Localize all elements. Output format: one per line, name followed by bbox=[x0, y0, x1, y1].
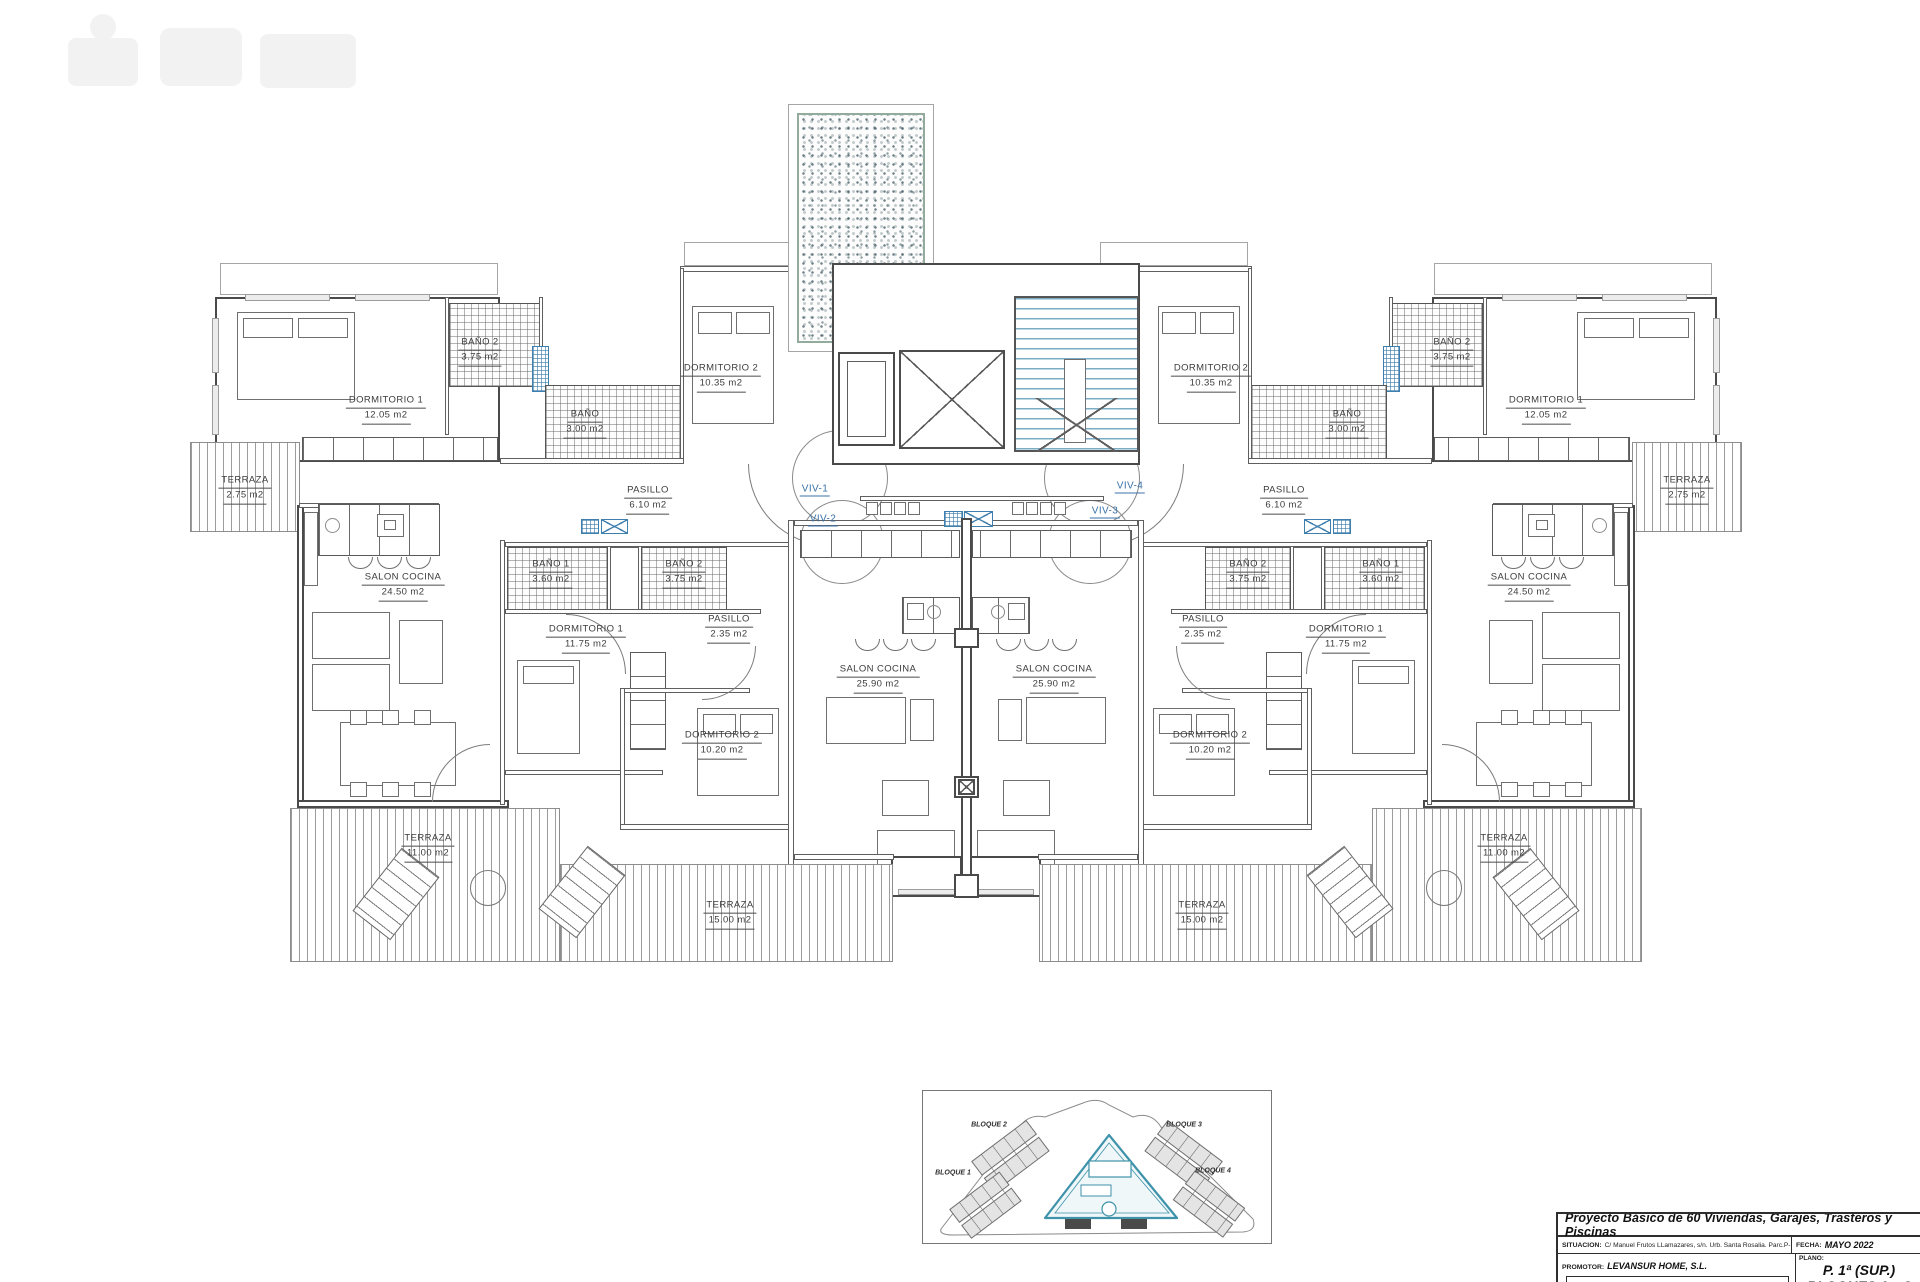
appliance-fixture bbox=[601, 519, 628, 534]
room-label-terraza11: TERRAZA11.00 m2 bbox=[1477, 833, 1530, 864]
wall-salon-divider bbox=[1138, 520, 1144, 895]
room-label-bano2: BAÑO 23.75 m2 bbox=[1226, 559, 1269, 590]
kitchen-counter bbox=[304, 512, 318, 586]
bar-stool bbox=[911, 639, 936, 651]
dining-chair bbox=[1565, 782, 1582, 797]
promotor-box bbox=[1566, 1276, 1789, 1282]
party-wall bbox=[961, 518, 972, 880]
coffee-table bbox=[1489, 620, 1533, 684]
furniture-wardrobe bbox=[630, 652, 666, 750]
plano-line1: P. 1ª (SUP.) bbox=[1796, 1262, 1920, 1278]
furniture-sofa bbox=[312, 664, 390, 711]
wall-partition bbox=[500, 458, 684, 464]
window-bar bbox=[245, 294, 330, 301]
shunt-x bbox=[958, 779, 975, 795]
furniture-sofa bbox=[826, 697, 906, 744]
bed-pillow bbox=[298, 318, 348, 338]
room-label-dormitorio1: DORMITORIO 111.75 m2 bbox=[1306, 624, 1386, 655]
room-label-dormitorio1: DORMITORIO 112.05 m2 bbox=[346, 395, 426, 426]
bar-stool bbox=[377, 557, 402, 569]
window-bar bbox=[1713, 385, 1720, 435]
bar-stool bbox=[1530, 557, 1555, 569]
window-bar bbox=[977, 889, 1034, 895]
elevator-cab bbox=[847, 361, 886, 437]
mailbox bbox=[908, 502, 920, 515]
situacion-label: SITUACION: bbox=[1562, 1242, 1602, 1249]
viv-label-2: VIV-2 bbox=[808, 514, 838, 527]
dining-chair bbox=[350, 782, 367, 797]
bar-stool bbox=[348, 557, 373, 569]
round-table bbox=[1426, 870, 1462, 906]
furniture-sofa bbox=[1542, 664, 1620, 711]
kitchen-hob bbox=[907, 603, 924, 620]
wall-partition bbox=[1483, 297, 1487, 435]
furniture-sofa bbox=[1542, 612, 1620, 659]
mailbox bbox=[894, 502, 906, 515]
wall-partition bbox=[860, 496, 1104, 501]
room-label-pasillo: PASILLO6.10 m2 bbox=[624, 485, 672, 516]
fecha-value: MAYO 2022 bbox=[1825, 1240, 1874, 1250]
window-bar bbox=[1502, 294, 1577, 301]
bed-pillow bbox=[698, 312, 732, 334]
title-block: Proyecto Básico de 60 Viviendas, Garajes… bbox=[1556, 1212, 1920, 1282]
room-label-pasillo: PASILLO6.10 m2 bbox=[1260, 485, 1308, 516]
furniture-armchair bbox=[910, 699, 934, 741]
kitchen-sink bbox=[1592, 518, 1607, 533]
room-label-dormitorio1: DORMITORIO 111.75 m2 bbox=[546, 624, 626, 655]
room-label-terraza15: TERRAZA15.00 m2 bbox=[1175, 900, 1228, 931]
appliance-fixture bbox=[1304, 519, 1331, 534]
window-bar bbox=[212, 385, 219, 435]
room-label-dormitorio1: DORMITORIO 112.05 m2 bbox=[1506, 395, 1586, 426]
kitchen-hob-inner bbox=[1536, 520, 1548, 530]
room-label-bano2: BAÑO 23.75 m2 bbox=[1430, 337, 1473, 368]
coffee-table bbox=[1003, 780, 1050, 816]
wall-salon-divider bbox=[788, 520, 794, 895]
mailbox bbox=[1040, 502, 1052, 515]
party-wall-post bbox=[954, 628, 979, 648]
mailbox bbox=[1054, 502, 1066, 515]
bar-stool bbox=[996, 639, 1021, 651]
situacion-value: C/ Manuel Frutos LLamazares, s/n. Urb. S… bbox=[1605, 1242, 1792, 1249]
promotor-value: LEVANSUR HOME, S.L. bbox=[1607, 1261, 1707, 1271]
washer-fixture bbox=[581, 519, 599, 534]
bed-pillow bbox=[1162, 312, 1196, 334]
site-plan-label-bloque4: BLOQUE 4 bbox=[1195, 1168, 1231, 1175]
bar-stool bbox=[1024, 639, 1049, 651]
party-wall-post bbox=[954, 874, 979, 898]
window-bar bbox=[898, 889, 955, 895]
dining-chair bbox=[414, 710, 431, 725]
room-label-terraza11: TERRAZA11.00 m2 bbox=[401, 833, 454, 864]
furniture-wardrobe bbox=[1266, 652, 1302, 750]
kitchen-hob-inner bbox=[384, 520, 396, 530]
dining-chair bbox=[1501, 710, 1518, 725]
room-label-pasillo: PASILLO2.35 m2 bbox=[705, 614, 753, 645]
furniture-wardrobe bbox=[1434, 437, 1630, 461]
wall-partition bbox=[620, 824, 792, 830]
project-title: Proyecto Básico de 60 Viviendas, Garajes… bbox=[1558, 1214, 1920, 1237]
kitchen-sink bbox=[927, 605, 941, 619]
wall-partition bbox=[968, 520, 1138, 526]
viv-label-3: VIV-3 bbox=[1090, 506, 1120, 519]
mailbox bbox=[866, 502, 878, 515]
kitchen-counter-row bbox=[972, 530, 1132, 558]
dining-chair bbox=[1501, 782, 1518, 797]
room-label-bano2: BAÑO 23.75 m2 bbox=[458, 337, 501, 368]
dining-chair bbox=[382, 710, 399, 725]
promotor-label: PROMOTOR: bbox=[1562, 1264, 1604, 1271]
room-label-dormitorio2: DORMITORIO 210.20 m2 bbox=[1170, 730, 1250, 761]
closet bbox=[1293, 547, 1322, 611]
room-label-dormitorio2: DORMITORIO 210.35 m2 bbox=[1171, 363, 1251, 394]
washer-fixture bbox=[1333, 519, 1351, 534]
dining-chair bbox=[350, 710, 367, 725]
site-plan-box: BLOQUE 2 BLOQUE 3 BLOQUE 1 BLOQUE 4 bbox=[922, 1090, 1272, 1244]
room-label-salon-cocina: SALON COCINA24.50 m2 bbox=[1488, 572, 1571, 603]
wall-salon-left bbox=[1628, 505, 1635, 808]
room-label-terraza: TERRAZA2.75 m2 bbox=[218, 475, 271, 506]
room-label-salon-cocina: SALON COCINA25.90 m2 bbox=[1013, 664, 1096, 695]
room-label-salon-cocina: SALON COCINA24.50 m2 bbox=[362, 572, 445, 603]
window-bar bbox=[355, 294, 430, 301]
wall-partition bbox=[500, 540, 505, 805]
bed-pillow bbox=[1584, 318, 1634, 338]
parapet bbox=[1434, 263, 1712, 295]
plano-line2: BLOQUES 1 y 3 bbox=[1796, 1278, 1920, 1282]
window-bar bbox=[1602, 294, 1687, 301]
kitchen-counter-row bbox=[800, 530, 960, 558]
mailbox bbox=[880, 502, 892, 515]
room-label-bano1: BAÑO 13.60 m2 bbox=[1359, 559, 1402, 590]
site-plan-label-bloque2: BLOQUE 2 bbox=[971, 1122, 1007, 1129]
wall-partition bbox=[1140, 824, 1312, 830]
parapet bbox=[220, 263, 498, 295]
wall-partition bbox=[794, 854, 894, 860]
wall-partition bbox=[505, 770, 663, 775]
dining-chair bbox=[382, 782, 399, 797]
site-plan-label-bloque3: BLOQUE 3 bbox=[1166, 1122, 1202, 1129]
closet bbox=[610, 547, 639, 611]
room-label-dormitorio2: DORMITORIO 210.20 m2 bbox=[682, 730, 762, 761]
dining-chair bbox=[1533, 710, 1550, 725]
bed-pillow bbox=[1200, 312, 1234, 334]
bar-stool bbox=[406, 557, 431, 569]
bed-pillow bbox=[736, 312, 770, 334]
wall-partition bbox=[1269, 770, 1427, 775]
room-label-dormitorio2: DORMITORIO 210.35 m2 bbox=[681, 363, 761, 394]
furniture-armchair bbox=[998, 699, 1022, 741]
stair-break-line bbox=[1014, 398, 1139, 452]
room-label-pasillo: PASILLO2.35 m2 bbox=[1179, 614, 1227, 645]
dining-chair bbox=[1565, 710, 1582, 725]
plano-cell: PLANO: P. 1ª (SUP.) BLOQUES 1 y 3 bbox=[1796, 1254, 1920, 1282]
kitchen-counter bbox=[1614, 512, 1628, 586]
furniture-sofa bbox=[312, 612, 390, 659]
wall-partition bbox=[620, 688, 625, 828]
window-bar bbox=[1713, 318, 1720, 373]
bar-stool bbox=[1559, 557, 1584, 569]
viv-label-4: VIV-4 bbox=[1115, 481, 1145, 494]
bed-pillow bbox=[243, 318, 293, 338]
dining-chair bbox=[414, 782, 431, 797]
mailbox bbox=[1026, 502, 1038, 515]
kitchen-sink bbox=[991, 605, 1005, 619]
wall-salon-left bbox=[297, 505, 304, 808]
situacion-cell: SITUACION: C/ Manuel Frutos LLamazares, … bbox=[1558, 1237, 1792, 1253]
room-label-terraza: TERRAZA2.75 m2 bbox=[1660, 475, 1713, 506]
furniture-wardrobe bbox=[302, 437, 498, 461]
bed-pillow bbox=[1639, 318, 1689, 338]
plano-label: PLANO: bbox=[1799, 1255, 1824, 1262]
elevator-shaft-x bbox=[899, 350, 1005, 449]
promotor-cell: PROMOTOR:LEVANSUR HOME, S.L. bbox=[1558, 1254, 1796, 1282]
mailbox bbox=[1012, 502, 1024, 515]
wall-partition bbox=[1038, 854, 1138, 860]
room-label-terraza15: TERRAZA15.00 m2 bbox=[703, 900, 756, 931]
room-label-bano1: BAÑO 13.60 m2 bbox=[529, 559, 572, 590]
bar-stool bbox=[883, 639, 908, 651]
wall-partition bbox=[1307, 688, 1312, 828]
kitchen-sink bbox=[325, 518, 340, 533]
bar-stool bbox=[855, 639, 880, 651]
wall-partition bbox=[1427, 540, 1432, 805]
window-bar bbox=[212, 318, 219, 373]
floorplan-right-unit bbox=[966, 0, 1920, 1280]
fecha-cell: FECHA: MAYO 2022 bbox=[1792, 1237, 1920, 1253]
room-label-salon-cocina: SALON COCINA25.90 m2 bbox=[837, 664, 920, 695]
wall-partition bbox=[1248, 458, 1432, 464]
coffee-table bbox=[399, 620, 443, 684]
viv-label-1: VIV-1 bbox=[800, 484, 830, 497]
bar-stool bbox=[1501, 557, 1526, 569]
furniture-sofa bbox=[1026, 697, 1106, 744]
bar-stool bbox=[1052, 639, 1077, 651]
site-plan-label-bloque1: BLOQUE 1 bbox=[935, 1170, 971, 1177]
room-label-bano2: BAÑO 23.75 m2 bbox=[662, 559, 705, 590]
dining-chair bbox=[1533, 782, 1550, 797]
kitchen-hob bbox=[1008, 603, 1025, 620]
room-label-bano: BAÑO3.00 m2 bbox=[563, 409, 606, 440]
room-label-bano: BAÑO3.00 m2 bbox=[1325, 409, 1368, 440]
coffee-table bbox=[882, 780, 929, 816]
round-table bbox=[470, 870, 506, 906]
fecha-label: FECHA: bbox=[1796, 1242, 1822, 1249]
